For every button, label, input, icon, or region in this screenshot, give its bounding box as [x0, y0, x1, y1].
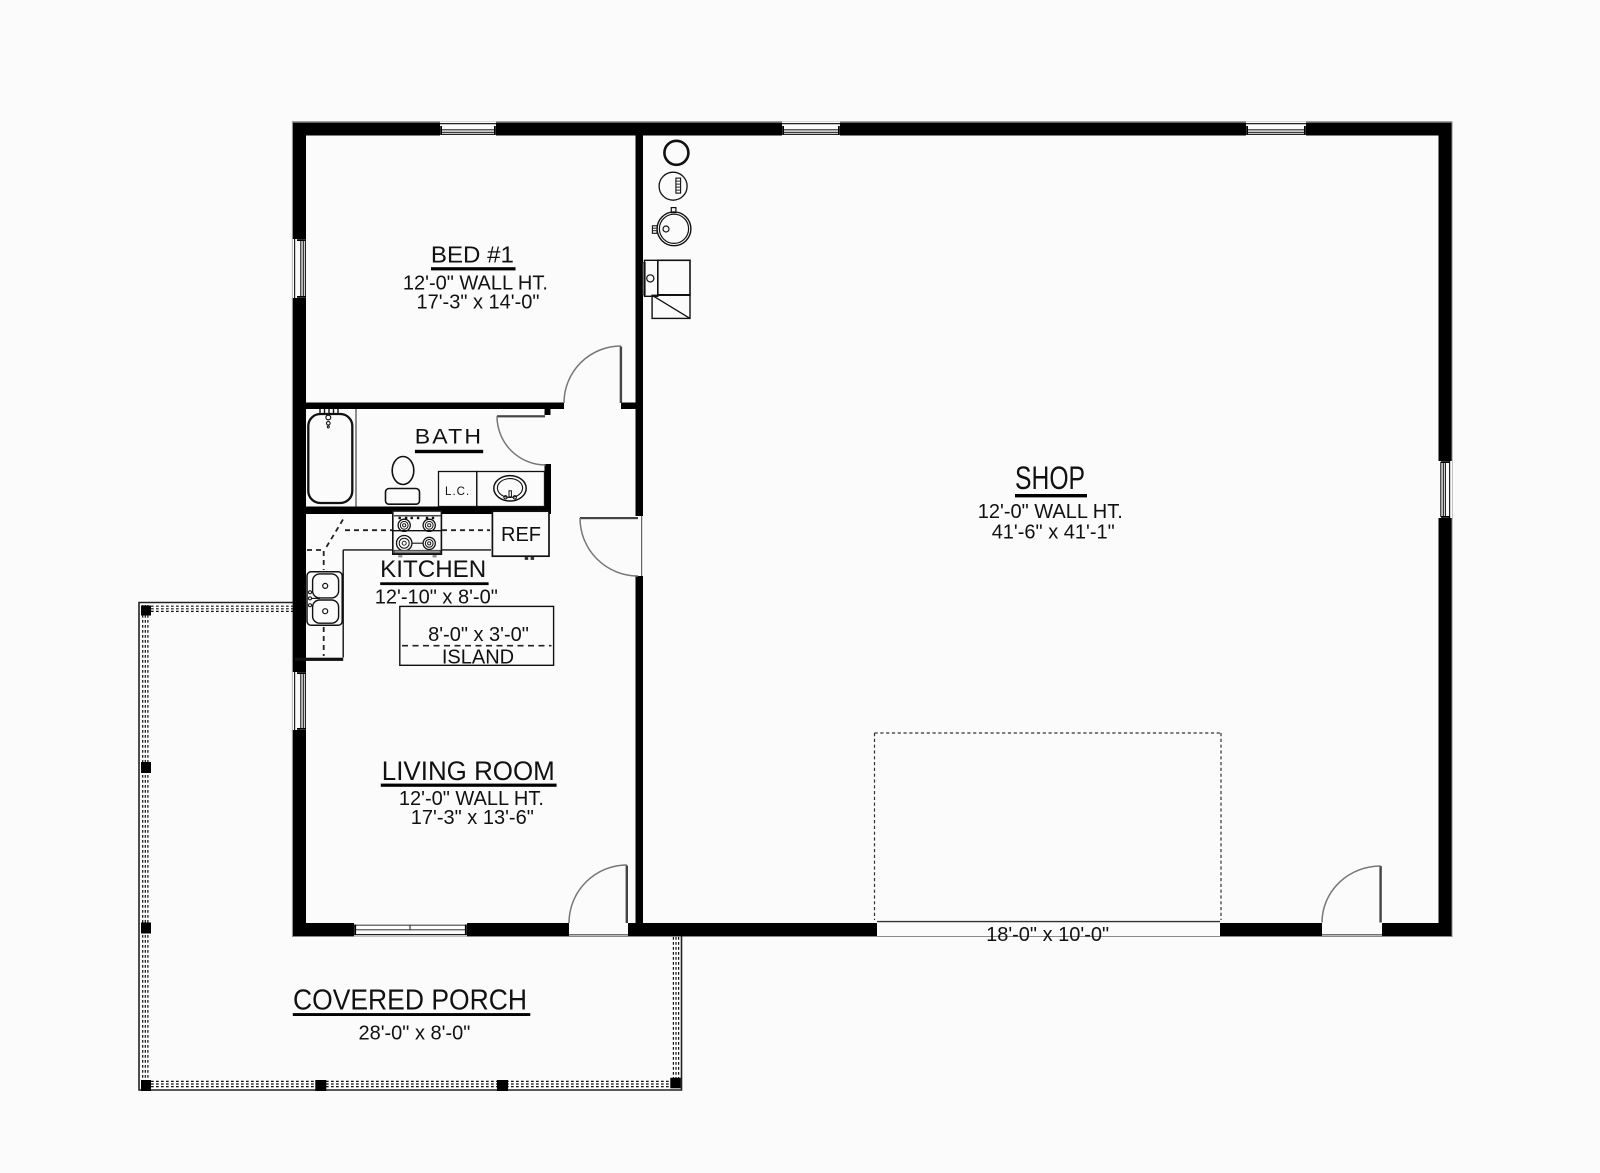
svg-text:12'-10" x 8'-0": 12'-10" x 8'-0" [375, 587, 498, 609]
svg-text:LIVING ROOM: LIVING ROOM [382, 756, 555, 786]
svg-text:41'-6" x 41'-1": 41'-6" x 41'-1" [992, 522, 1115, 544]
svg-text:BED #1: BED #1 [431, 242, 514, 268]
svg-text:KITCHEN: KITCHEN [380, 556, 486, 583]
svg-text:COVERED PORCH: COVERED PORCH [293, 984, 527, 1016]
svg-text:8'-0" x 3'-0": 8'-0" x 3'-0" [428, 624, 529, 646]
svg-text:12'-0" WALL HT.: 12'-0" WALL HT. [978, 501, 1123, 523]
svg-text:18'-0" x 10'-0": 18'-0" x 10'-0" [986, 924, 1109, 946]
svg-text:REF: REF [501, 524, 541, 546]
svg-text:SHOP: SHOP [1015, 460, 1085, 496]
svg-text:28'-0" x 8'-0": 28'-0" x 8'-0" [358, 1023, 470, 1045]
svg-text:BATH: BATH [415, 426, 484, 449]
svg-text:17'-3" x 13'-6": 17'-3" x 13'-6" [411, 807, 534, 829]
svg-text:17'-3" x 14'-0": 17'-3" x 14'-0" [416, 292, 539, 314]
svg-text:L.C.: L.C. [445, 486, 470, 498]
svg-text:ISLAND: ISLAND [442, 647, 514, 669]
